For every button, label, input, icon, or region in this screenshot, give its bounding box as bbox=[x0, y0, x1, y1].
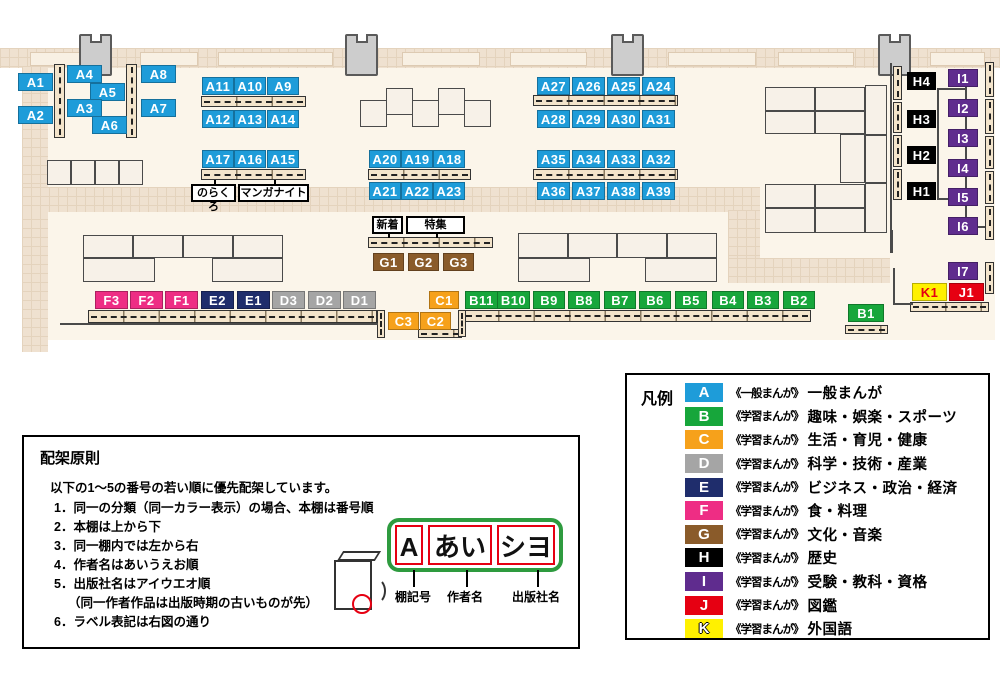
legend-row-B: B《学習まんが》趣味・娯楽・スポーツ bbox=[685, 405, 958, 429]
bookshelf-strip bbox=[377, 310, 385, 338]
shelf-label-B3: B3 bbox=[747, 291, 779, 309]
legend-category: 生活・育児・健康 bbox=[808, 429, 928, 450]
legend-chip-I: I bbox=[685, 572, 723, 591]
table-block bbox=[183, 235, 233, 258]
bookshelf-strip bbox=[201, 169, 306, 180]
table-block bbox=[360, 100, 387, 127]
shelf-label-H3: H3 bbox=[907, 110, 936, 128]
legend-category: 外国語 bbox=[808, 618, 853, 639]
wall-line bbox=[893, 268, 895, 304]
shelf-label-G1: G1 bbox=[373, 253, 404, 271]
legend-box: 凡例 A《一般まんが》一般まんがB《学習まんが》趣味・娯楽・スポーツC《学習まん… bbox=[625, 373, 990, 640]
caption-publisher: 出版社名 bbox=[512, 588, 560, 605]
shelf-label-A3: A3 bbox=[67, 99, 102, 117]
legend-category: 科学・技術・産業 bbox=[808, 453, 928, 474]
bookshelf-strip bbox=[893, 102, 902, 133]
rules-item: 2．本棚は上から下 bbox=[54, 518, 373, 537]
shelf-label-B7: B7 bbox=[604, 291, 636, 309]
legend-chip-F: F bbox=[685, 501, 723, 520]
shelf-label-A11: A11 bbox=[202, 77, 234, 95]
shelf-label-I4: I4 bbox=[948, 159, 978, 177]
legend-category: 受験・教科・資格 bbox=[808, 571, 928, 592]
legend-category: 歴史 bbox=[808, 547, 838, 568]
legend-row-I: I《学習まんが》受験・教科・資格 bbox=[685, 570, 958, 594]
table-block bbox=[518, 233, 568, 258]
spine-label-callout-line bbox=[366, 578, 386, 604]
legend-row-K: K《学習まんが》外国語 bbox=[685, 617, 958, 641]
shelf-label-A31: A31 bbox=[642, 110, 675, 128]
shelf-label-A14: A14 bbox=[267, 110, 299, 128]
shelf-label-C1: C1 bbox=[429, 291, 459, 309]
table-block bbox=[815, 184, 865, 208]
bookshelf-strip bbox=[533, 95, 678, 106]
rules-item: （同一作者作品は出版時期の古いものが先） bbox=[54, 594, 373, 613]
sign-manga-night: マンガナイト bbox=[238, 184, 309, 202]
window-block bbox=[778, 52, 854, 66]
shelf-label-H2: H2 bbox=[907, 146, 936, 164]
wall-line bbox=[891, 230, 893, 253]
shelf-label-D1: D1 bbox=[343, 291, 376, 309]
bookshelf-strip bbox=[985, 262, 994, 294]
table-block bbox=[518, 258, 590, 282]
shelf-label-A26: A26 bbox=[572, 77, 605, 95]
rules-item: 6．ラベル表記は右図の通り bbox=[54, 613, 373, 632]
table-block bbox=[464, 100, 491, 127]
legend-title: 凡例 bbox=[641, 385, 673, 409]
legend-row-J: J《学習まんが》図鑑 bbox=[685, 593, 958, 617]
shelf-label-B5: B5 bbox=[675, 291, 707, 309]
leader-line bbox=[537, 570, 539, 587]
shelf-label-B6: B6 bbox=[639, 291, 671, 309]
shelf-label-A20: A20 bbox=[369, 150, 401, 168]
sign-special-feature: 特集 bbox=[406, 216, 465, 234]
table-block bbox=[233, 235, 283, 258]
legend-scope: 《学習まんが》 bbox=[730, 479, 804, 495]
table-block bbox=[438, 88, 465, 115]
pillar-notch bbox=[356, 34, 368, 43]
shelf-label-K1: K1 bbox=[912, 283, 947, 301]
shelf-label-D2: D2 bbox=[308, 291, 341, 309]
shelf-label-E1: E1 bbox=[237, 291, 270, 309]
shelf-label-A17: A17 bbox=[202, 150, 234, 168]
table-block bbox=[840, 134, 865, 183]
spine-label-example: A あい シヨ bbox=[387, 518, 563, 572]
legend-category: ビジネス・政治・経済 bbox=[808, 477, 958, 498]
shelf-label-A23: A23 bbox=[433, 182, 465, 200]
shelf-label-B8: B8 bbox=[568, 291, 600, 309]
window-block bbox=[140, 52, 198, 66]
rules-item: 4．作者名はあいうえお順 bbox=[54, 556, 373, 575]
table-block bbox=[83, 235, 133, 258]
legend-scope: 《学習まんが》 bbox=[730, 503, 804, 519]
rules-list: 1．同一の分類（同一カラー表示）の場合、本棚は番号順2．本棚は上から下3．同一棚… bbox=[54, 499, 373, 632]
shelf-label-A32: A32 bbox=[642, 150, 675, 168]
shelf-label-A2: A2 bbox=[18, 106, 53, 124]
shelf-label-A38: A38 bbox=[607, 182, 640, 200]
shelf-label-A24: A24 bbox=[642, 77, 675, 95]
legend-scope: 《学習まんが》 bbox=[730, 526, 804, 542]
table-block bbox=[83, 258, 155, 282]
legend-scope: 《一般まんが》 bbox=[730, 385, 804, 401]
wall-line bbox=[60, 323, 378, 325]
legend-chip-A: A bbox=[685, 383, 723, 402]
legend-row-A: A《一般まんが》一般まんが bbox=[685, 381, 958, 405]
bookshelf-strip bbox=[985, 99, 994, 134]
shelf-label-I3: I3 bbox=[948, 129, 978, 147]
shelf-label-I2: I2 bbox=[948, 99, 978, 117]
shelf-label-B4: B4 bbox=[712, 291, 744, 309]
legend-chip-B: B bbox=[685, 407, 723, 426]
shelf-label-C2: C2 bbox=[420, 312, 451, 330]
shelf-label-C3: C3 bbox=[388, 312, 419, 330]
shelf-label-A16: A16 bbox=[234, 150, 266, 168]
shelf-label-A28: A28 bbox=[537, 110, 570, 128]
legend-scope: 《学習まんが》 bbox=[730, 550, 804, 566]
bookshelf-strip bbox=[985, 206, 994, 240]
table-block bbox=[71, 160, 95, 185]
aisle-right bbox=[728, 258, 890, 283]
legend-category: 一般まんが bbox=[808, 382, 883, 403]
table-block bbox=[815, 208, 865, 233]
table-block bbox=[412, 100, 439, 127]
shelf-label-A4: A4 bbox=[67, 65, 102, 83]
bookshelf-strip bbox=[910, 302, 989, 312]
shelf-label-A1: A1 bbox=[18, 73, 53, 91]
shelf-label-A9: A9 bbox=[267, 77, 299, 95]
caption-author: 作者名 bbox=[447, 588, 483, 605]
legend-chip-E: E bbox=[685, 478, 723, 497]
shelf-label-A36: A36 bbox=[537, 182, 570, 200]
rules-item: 1．同一の分類（同一カラー表示）の場合、本棚は番号順 bbox=[54, 499, 373, 518]
bookshelf-strip bbox=[368, 237, 493, 248]
legend-chip-C: C bbox=[685, 430, 723, 449]
shelf-label-B10: B10 bbox=[497, 291, 530, 309]
table-block bbox=[212, 258, 283, 282]
shelf-label-A30: A30 bbox=[607, 110, 640, 128]
shelf-label-A37: A37 bbox=[572, 182, 605, 200]
legend-category: 文化・音楽 bbox=[808, 524, 883, 545]
table-block bbox=[568, 233, 617, 258]
shelf-label-B2: B2 bbox=[783, 291, 815, 309]
table-block bbox=[645, 258, 717, 282]
shelf-label-A12: A12 bbox=[202, 110, 234, 128]
table-block bbox=[765, 208, 815, 233]
legend-row-E: E《学習まんが》ビジネス・政治・経済 bbox=[685, 475, 958, 499]
shelf-label-A10: A10 bbox=[234, 77, 266, 95]
sign-norakuro: のらくろ bbox=[191, 184, 236, 202]
table-block bbox=[815, 111, 865, 134]
shelf-label-F2: F2 bbox=[130, 291, 163, 309]
shelf-label-A19: A19 bbox=[401, 150, 433, 168]
wall-line bbox=[893, 303, 913, 305]
shelf-label-J1: J1 bbox=[949, 283, 984, 301]
shelf-label-B9: B9 bbox=[533, 291, 565, 309]
pillar-notch bbox=[622, 34, 634, 43]
bookshelf-strip bbox=[458, 310, 466, 337]
pillar bbox=[345, 34, 378, 76]
shelf-label-I5: I5 bbox=[948, 188, 978, 206]
bookshelf-strip bbox=[368, 169, 471, 180]
table-block bbox=[765, 111, 815, 134]
bookshelf-strip bbox=[893, 66, 902, 100]
window-block bbox=[510, 52, 587, 66]
legend-category: 図鑑 bbox=[808, 595, 838, 616]
shelf-label-E2: E2 bbox=[201, 291, 234, 309]
shelf-label-A39: A39 bbox=[642, 182, 675, 200]
wall-line bbox=[890, 63, 892, 253]
legend-row-G: G《学習まんが》文化・音楽 bbox=[685, 523, 958, 547]
legend-chip-D: D bbox=[685, 454, 723, 473]
table-block bbox=[133, 235, 183, 258]
shelf-label-I6: I6 bbox=[948, 217, 978, 235]
legend-scope: 《学習まんが》 bbox=[730, 432, 804, 448]
aisle-right-connector bbox=[728, 210, 760, 265]
legend-scope: 《学習まんが》 bbox=[730, 574, 804, 590]
legend-chip-J: J bbox=[685, 596, 723, 615]
legend-scope: 《学習まんが》 bbox=[730, 621, 804, 637]
table-block bbox=[119, 160, 143, 185]
shelf-label-G3: G3 bbox=[443, 253, 474, 271]
legend-scope: 《学習まんが》 bbox=[730, 456, 804, 472]
bookshelf-strip bbox=[985, 136, 994, 169]
legend-scope: 《学習まんが》 bbox=[730, 408, 804, 424]
legend-row-H: H《学習まんが》歴史 bbox=[685, 546, 958, 570]
shelf-label-A21: A21 bbox=[369, 182, 401, 200]
bookshelf-strip bbox=[463, 310, 811, 322]
rules-item: 5．出版社名はアイウエオ順 bbox=[54, 575, 373, 594]
legend-rows: A《一般まんが》一般まんがB《学習まんが》趣味・娯楽・スポーツC《学習まんが》生… bbox=[685, 381, 958, 641]
shelf-label-A29: A29 bbox=[572, 110, 605, 128]
sign-new-arrivals: 新着 bbox=[372, 216, 403, 234]
example-publisher: シヨ bbox=[497, 525, 555, 565]
shelf-label-A22: A22 bbox=[401, 182, 433, 200]
shelf-label-A15: A15 bbox=[267, 150, 299, 168]
window-block bbox=[668, 52, 756, 66]
table-block bbox=[95, 160, 119, 185]
pillar-notch bbox=[90, 34, 102, 43]
library-floor-map: A1A2A4A5A3A6A8A7A11A10A9A12A13A14A17A16A… bbox=[0, 0, 1000, 700]
bookshelf-strip bbox=[54, 64, 65, 138]
legend-chip-H: H bbox=[685, 548, 723, 567]
shelf-label-A34: A34 bbox=[572, 150, 605, 168]
table-block bbox=[47, 160, 71, 185]
legend-row-C: C《学習まんが》生活・育児・健康 bbox=[685, 428, 958, 452]
window-block bbox=[218, 52, 333, 66]
bookshelf-strip bbox=[201, 96, 306, 107]
table-block bbox=[865, 183, 887, 233]
table-block bbox=[667, 233, 717, 258]
shelf-label-B1: B1 bbox=[848, 304, 884, 322]
legend-row-D: D《学習まんが》科学・技術・産業 bbox=[685, 452, 958, 476]
rules-item: 3．同一棚内では左から右 bbox=[54, 537, 373, 556]
wall-line bbox=[937, 88, 939, 199]
table-block bbox=[386, 88, 413, 115]
shelf-label-A35: A35 bbox=[537, 150, 570, 168]
shelf-label-A7: A7 bbox=[141, 99, 176, 117]
example-shelf-code: A bbox=[395, 525, 423, 565]
shelf-label-H4: H4 bbox=[907, 72, 936, 90]
shelf-label-A27: A27 bbox=[537, 77, 570, 95]
shelf-label-A33: A33 bbox=[607, 150, 640, 168]
shelf-label-H1: H1 bbox=[907, 182, 936, 200]
table-block bbox=[765, 184, 815, 208]
shelf-label-I1: I1 bbox=[948, 69, 978, 87]
shelf-label-F3: F3 bbox=[95, 291, 128, 309]
shelf-label-F1: F1 bbox=[165, 291, 198, 309]
leader-line bbox=[413, 570, 415, 587]
legend-chip-G: G bbox=[685, 525, 723, 544]
bookshelf-strip bbox=[985, 62, 994, 97]
bookshelf-strip bbox=[126, 64, 137, 138]
table-block bbox=[765, 87, 815, 111]
rules-title: 配架原則 bbox=[40, 447, 100, 468]
window-block bbox=[402, 52, 480, 66]
pillar bbox=[611, 34, 644, 76]
bookshelf-strip bbox=[985, 171, 994, 204]
legend-category: 趣味・娯楽・スポーツ bbox=[808, 406, 958, 427]
shelf-label-I7: I7 bbox=[948, 262, 978, 280]
rules-intro: 以下の1～5の番号の若い順に優先配架しています。 bbox=[50, 477, 337, 496]
caption-shelf-code: 棚記号 bbox=[395, 588, 431, 605]
wall-line bbox=[937, 88, 965, 90]
table-block bbox=[617, 233, 667, 258]
table-block bbox=[865, 135, 887, 183]
legend-category: 食・料理 bbox=[808, 500, 868, 521]
legend-scope: 《学習まんが》 bbox=[730, 597, 804, 613]
table-block bbox=[815, 87, 865, 111]
example-author: あい bbox=[428, 525, 492, 565]
shelf-label-D3: D3 bbox=[272, 291, 305, 309]
window-block bbox=[930, 52, 985, 66]
leader-line bbox=[466, 570, 468, 587]
bookshelf-strip bbox=[893, 135, 902, 167]
bookshelf-strip bbox=[893, 169, 902, 200]
pillar-notch bbox=[889, 34, 901, 43]
table-block bbox=[865, 85, 887, 135]
shelf-label-G2: G2 bbox=[408, 253, 439, 271]
legend-row-F: F《学習まんが》食・料理 bbox=[685, 499, 958, 523]
bookshelf-strip bbox=[88, 310, 377, 323]
shelf-label-A13: A13 bbox=[234, 110, 266, 128]
bookshelf-strip bbox=[533, 169, 678, 180]
shelf-label-A18: A18 bbox=[433, 150, 465, 168]
shelf-label-A8: A8 bbox=[141, 65, 176, 83]
shelf-label-A25: A25 bbox=[607, 77, 640, 95]
legend-chip-K: K bbox=[685, 619, 723, 638]
shelf-label-A6: A6 bbox=[92, 116, 127, 134]
shelf-label-B11: B11 bbox=[465, 291, 498, 309]
bookshelf-strip bbox=[845, 325, 888, 334]
